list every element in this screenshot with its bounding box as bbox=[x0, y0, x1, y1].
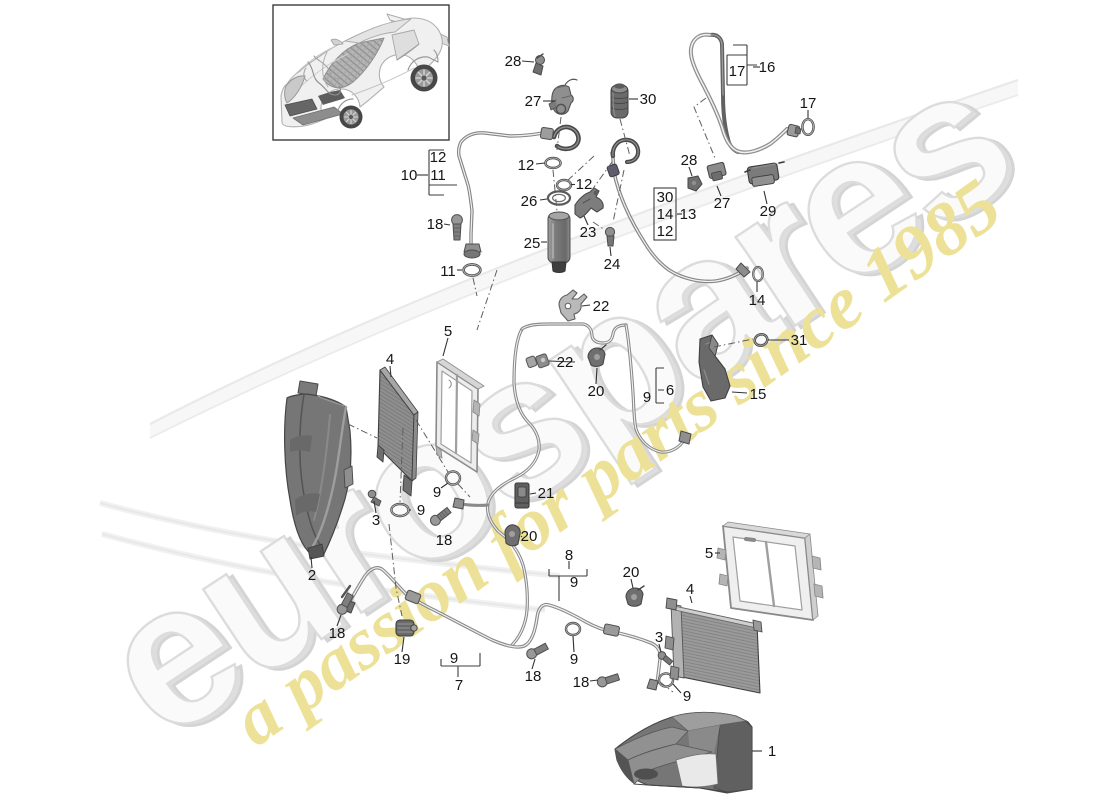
svg-text:23: 23 bbox=[580, 224, 597, 241]
svg-text:20: 20 bbox=[521, 528, 538, 545]
svg-text:9: 9 bbox=[417, 502, 425, 519]
svg-text:22: 22 bbox=[593, 298, 610, 315]
svg-text:30: 30 bbox=[657, 189, 674, 206]
svg-text:21: 21 bbox=[538, 485, 555, 502]
svg-text:12: 12 bbox=[430, 149, 447, 166]
svg-text:27: 27 bbox=[525, 93, 542, 110]
svg-text:17: 17 bbox=[729, 63, 746, 80]
svg-text:2: 2 bbox=[308, 567, 316, 584]
svg-text:19: 19 bbox=[394, 651, 411, 668]
svg-text:8: 8 bbox=[565, 547, 573, 564]
svg-text:17: 17 bbox=[800, 95, 817, 112]
svg-text:4: 4 bbox=[386, 351, 394, 368]
svg-text:18: 18 bbox=[436, 532, 453, 549]
svg-text:22: 22 bbox=[557, 354, 574, 371]
svg-text:18: 18 bbox=[329, 625, 346, 642]
svg-text:14: 14 bbox=[657, 206, 674, 223]
svg-text:10: 10 bbox=[401, 167, 418, 184]
svg-text:4: 4 bbox=[686, 581, 694, 598]
svg-text:28: 28 bbox=[505, 53, 522, 70]
svg-text:15: 15 bbox=[750, 386, 767, 403]
svg-text:5: 5 bbox=[444, 323, 452, 340]
svg-text:9: 9 bbox=[683, 688, 691, 705]
svg-text:12: 12 bbox=[576, 176, 593, 193]
svg-text:30: 30 bbox=[640, 91, 657, 108]
svg-text:7: 7 bbox=[455, 677, 463, 694]
svg-text:9: 9 bbox=[570, 574, 578, 591]
svg-text:14: 14 bbox=[749, 292, 766, 309]
svg-text:9: 9 bbox=[570, 651, 578, 668]
svg-text:13: 13 bbox=[680, 206, 697, 223]
svg-text:9: 9 bbox=[433, 484, 441, 501]
svg-text:29: 29 bbox=[760, 203, 777, 220]
svg-text:31: 31 bbox=[791, 332, 808, 349]
svg-text:24: 24 bbox=[604, 256, 621, 273]
svg-text:26: 26 bbox=[521, 193, 538, 210]
svg-text:12: 12 bbox=[657, 223, 674, 240]
svg-text:18: 18 bbox=[525, 668, 542, 685]
svg-text:20: 20 bbox=[623, 564, 640, 581]
svg-text:1: 1 bbox=[768, 743, 776, 760]
svg-text:9: 9 bbox=[450, 650, 458, 667]
svg-text:20: 20 bbox=[588, 383, 605, 400]
svg-text:18: 18 bbox=[427, 216, 444, 233]
svg-text:28: 28 bbox=[681, 152, 698, 169]
svg-text:18: 18 bbox=[573, 674, 590, 691]
svg-text:5: 5 bbox=[705, 545, 713, 562]
svg-text:27: 27 bbox=[714, 195, 731, 212]
svg-text:11: 11 bbox=[440, 263, 456, 280]
svg-text:3: 3 bbox=[655, 629, 663, 646]
svg-text:12: 12 bbox=[518, 157, 535, 174]
svg-text:9: 9 bbox=[643, 389, 651, 406]
svg-text:11: 11 bbox=[430, 167, 446, 184]
svg-text:25: 25 bbox=[524, 235, 541, 252]
svg-text:3: 3 bbox=[372, 512, 380, 529]
svg-text:16: 16 bbox=[759, 59, 776, 76]
svg-text:6: 6 bbox=[666, 382, 674, 399]
